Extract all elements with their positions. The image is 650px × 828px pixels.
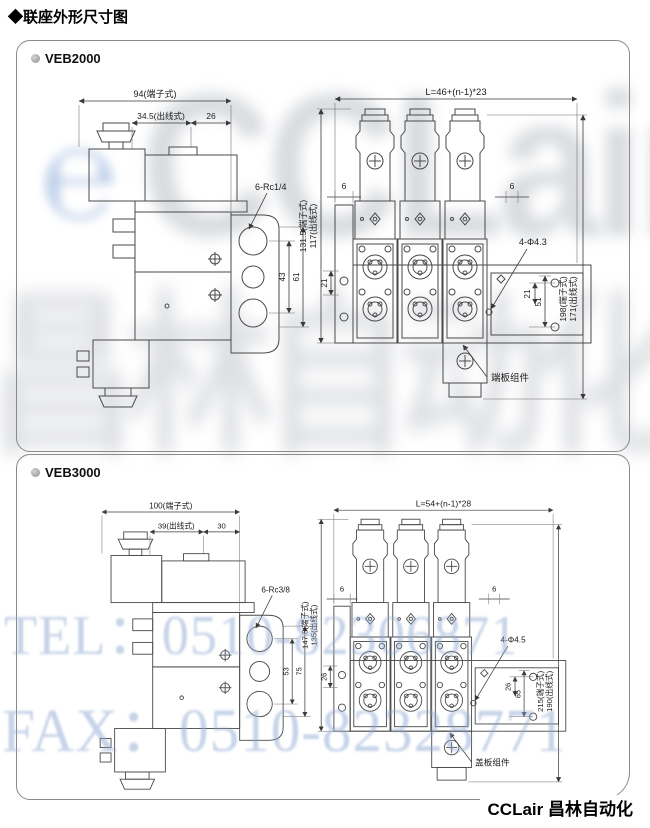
dim-height-terminal: 147.5(端子式) xyxy=(300,601,310,649)
dim-width-offset: 30 xyxy=(217,521,226,530)
dim-total-height-wire: 190(出线式) xyxy=(544,670,554,711)
veb3000-header: VEB3000 xyxy=(31,465,101,480)
label-mount-holes: 4-Φ4.3 xyxy=(519,237,547,247)
dim-width-terminal: 100(端子式) xyxy=(149,500,193,510)
dim-hole-pitch: 26 xyxy=(504,683,513,691)
dim-total-height-terminal: 215(端子式) xyxy=(535,670,545,711)
veb3000-dimension-drawing: 100(端子式) 39(出线式) 30 6-Rc3/8 53 75 L=54+(… xyxy=(17,483,629,791)
model-label: VEB2000 xyxy=(45,51,101,66)
model-label: VEB3000 xyxy=(45,465,101,480)
dim-width-terminal: 94(端子式) xyxy=(133,88,176,99)
dim-port-span: 61 xyxy=(292,272,301,281)
dim-width-wire: 34.5(出线式) xyxy=(137,111,185,121)
dim-hole-span: 65 xyxy=(513,690,522,698)
brand-footer: CCLair 昌林自动化 xyxy=(480,795,638,822)
dim-height-terminal: 131.5(端子式) xyxy=(298,200,308,253)
label-port-thread: 6-Rc1/4 xyxy=(255,182,287,192)
catalog-page: { "header": { "title": "◆联座外形尺寸图" }, "wa… xyxy=(0,0,650,828)
dim-port-pitch: 43 xyxy=(278,272,287,281)
dim-length-formula: L=54+(n-1)*28 xyxy=(416,499,472,509)
dim-base-offset: 21 xyxy=(320,278,329,287)
dim-hole-pitch: 21 xyxy=(523,289,532,298)
dim-length-formula: L=46+(n-1)*23 xyxy=(425,87,486,98)
dim-edge-offset-right: 6 xyxy=(510,181,515,191)
bullet-icon xyxy=(31,54,40,63)
veb2000-dimension-drawing: 94(端子式) 34.5(出线式) 26 6-Rc1/4 43 61 L=46+… xyxy=(17,69,629,443)
veb2000-header: VEB2000 xyxy=(31,51,101,66)
dim-edge-offset-right: 6 xyxy=(492,585,496,594)
label-end-plate: 端板组件 xyxy=(491,372,530,384)
page-title: ◆联座外形尺寸图 xyxy=(8,6,128,27)
dim-width-wire: 39(出线式) xyxy=(158,520,195,530)
dim-edge-offset-left: 6 xyxy=(342,181,347,191)
label-mount-holes: 4-Φ4.5 xyxy=(501,635,527,644)
bullet-icon xyxy=(31,468,40,477)
dim-hole-span: 51 xyxy=(534,297,543,306)
dim-base-offset: 26 xyxy=(320,673,329,681)
dim-port-span: 75 xyxy=(294,667,303,675)
dim-height-wire: 135(出线式) xyxy=(309,604,319,645)
dim-edge-offset-left: 6 xyxy=(340,585,344,594)
dim-width-offset: 26 xyxy=(206,111,216,121)
dim-height-wire: 117(出线式) xyxy=(308,203,318,248)
dim-port-pitch: 53 xyxy=(282,667,291,675)
label-end-plate: 盖板组件 xyxy=(475,757,510,768)
dim-total-height-terminal: 198(端子式) xyxy=(558,276,568,322)
label-port-thread: 6-Rc3/8 xyxy=(261,586,290,595)
veb3000-panel: VEB3000 100(端子式) 39(出线式) 30 6-Rc3/8 53 7… xyxy=(16,454,630,800)
veb2000-panel: VEB2000 94(端子式) 34.5(出线式) 26 6-Rc1/4 43 … xyxy=(16,40,630,452)
dim-total-height-wire: 171(出线式) xyxy=(568,276,578,322)
